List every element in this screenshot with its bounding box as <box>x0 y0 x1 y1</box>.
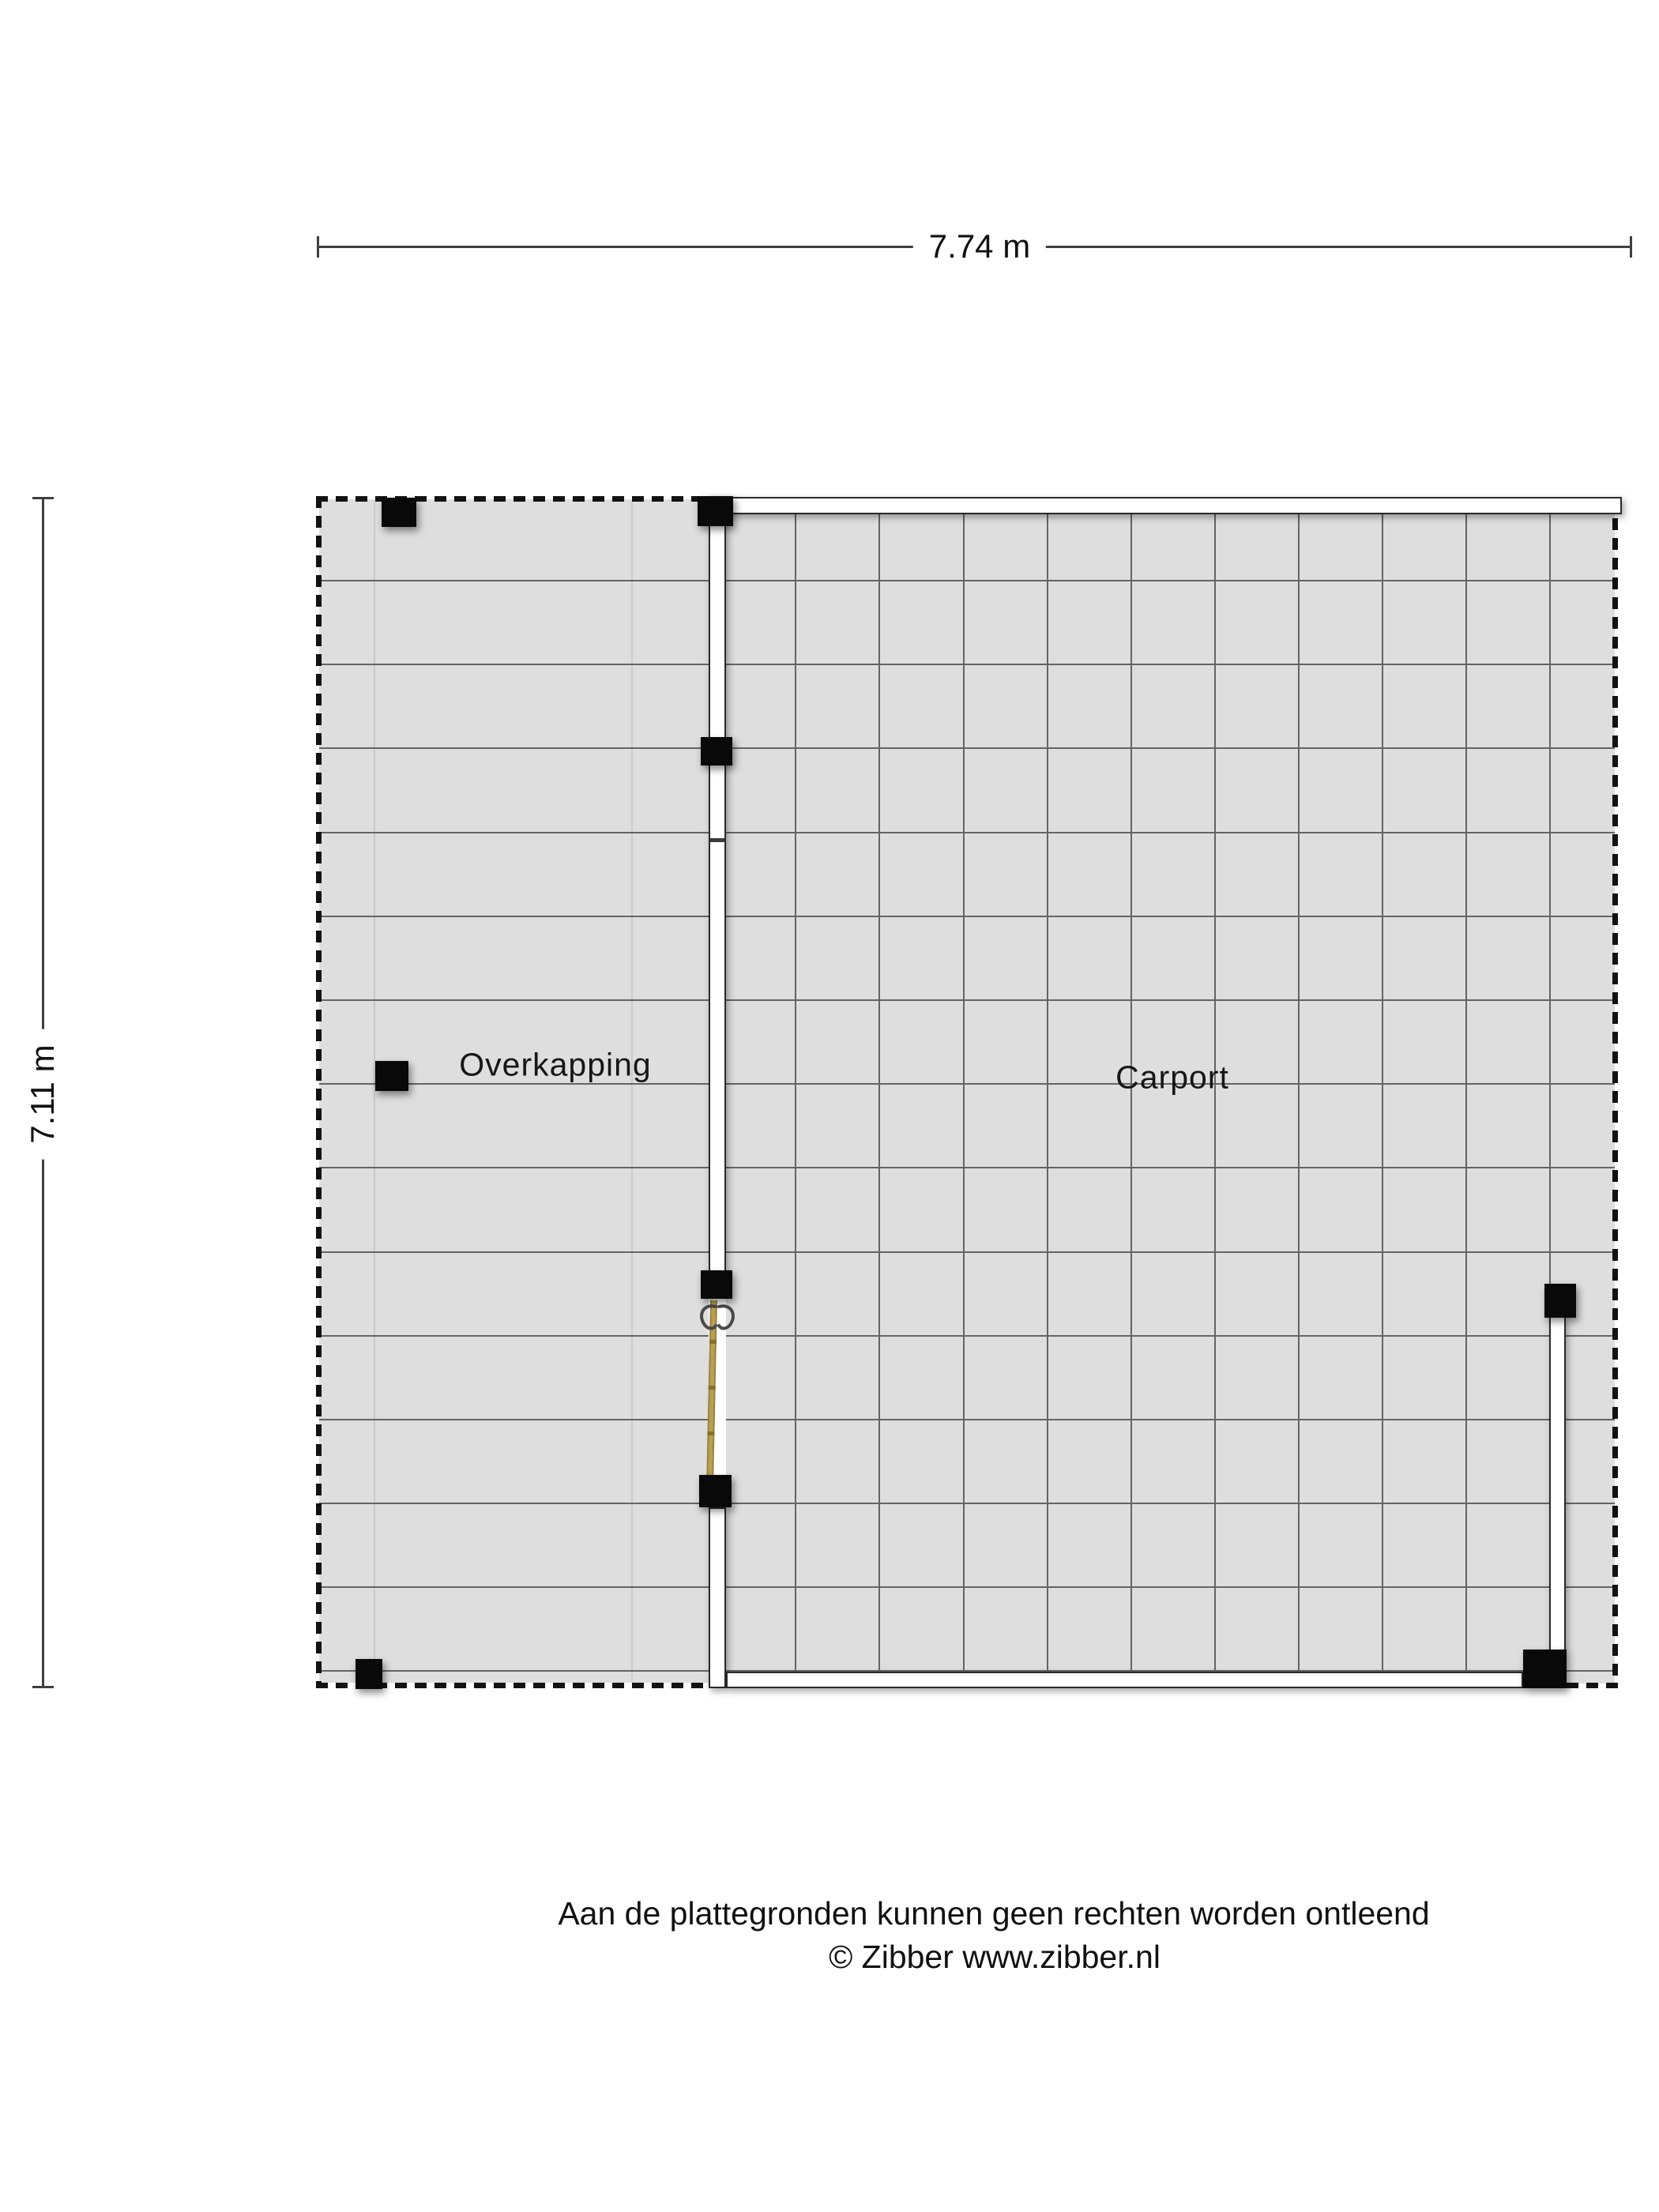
wall-middle-lower <box>709 1507 726 1688</box>
edge-left <box>316 496 322 1688</box>
wall-bottom <box>726 1672 1523 1688</box>
grid-line-h <box>319 1419 709 1420</box>
grid-line-h <box>319 1503 709 1504</box>
grid-line-h <box>726 1167 1615 1168</box>
grid-line-h <box>319 1167 709 1168</box>
grid-line-v <box>1465 514 1467 1671</box>
grid-line-h <box>726 1586 1615 1588</box>
grid-line-h <box>319 916 709 917</box>
grid-line-h <box>319 999 709 1001</box>
room-label-overkapping: Overkapping <box>459 1049 651 1082</box>
grid-line-v <box>963 514 965 1671</box>
grid-line-h <box>319 1586 709 1588</box>
grid-line-h <box>319 1251 709 1253</box>
grid-line-v <box>1298 514 1300 1671</box>
post <box>1523 1650 1567 1688</box>
wall-joint <box>710 838 724 842</box>
gate-rung <box>707 1431 714 1435</box>
room-label-carport: Carport <box>1115 1062 1229 1094</box>
edge-bottom-right <box>1567 1683 1618 1688</box>
grid-line-h <box>319 664 709 665</box>
wall-middle-upper <box>709 497 726 1272</box>
edge-top <box>316 496 709 502</box>
post <box>701 737 732 766</box>
grid-line-v <box>795 514 796 1671</box>
overkapping-floor <box>319 499 709 1683</box>
grid-line-h <box>319 580 709 581</box>
copyright-text: © Zibber www.zibber.nl <box>829 1941 1161 1973</box>
grid-line-h <box>726 580 1615 581</box>
grid-line-h <box>726 1503 1615 1504</box>
grid-line-h <box>319 747 709 749</box>
gate-rung <box>709 1386 716 1390</box>
post <box>375 1061 408 1091</box>
grid-line-v <box>374 502 375 1681</box>
carport-floor-corner <box>1567 1672 1615 1683</box>
grid-line-h <box>726 832 1615 833</box>
post <box>382 498 416 527</box>
floorplan-page: 7.74 m 7.11 m Overkapping Carport Aan de… <box>0 0 1659 2212</box>
floorplan <box>0 0 1659 2212</box>
grid-line-h <box>319 1335 709 1337</box>
gate-rung <box>709 1340 717 1344</box>
grid-line-v <box>631 502 633 1681</box>
wall-right-stub <box>1549 1316 1566 1651</box>
grid-line-h <box>726 747 1615 749</box>
grid-line-h <box>726 1251 1615 1253</box>
grid-line-v <box>1382 514 1383 1671</box>
post <box>1544 1284 1576 1318</box>
grid-line-h <box>319 832 709 833</box>
gate-handle-icon <box>697 1302 738 1338</box>
post <box>699 1475 732 1507</box>
grid-line-h <box>726 916 1615 917</box>
grid-line-h <box>726 999 1615 1001</box>
post <box>698 496 733 526</box>
wall-top <box>709 497 1622 514</box>
grid-line-h <box>726 1335 1615 1337</box>
disclaimer-text: Aan de plattegronden kunnen geen rechten… <box>558 1898 1429 1930</box>
post <box>355 1659 382 1689</box>
grid-line-v <box>878 514 880 1671</box>
grid-line-h <box>726 664 1615 665</box>
edge-right <box>1612 518 1618 1688</box>
post <box>701 1270 732 1299</box>
grid-line-h <box>726 1419 1615 1420</box>
grid-line-v <box>1047 514 1048 1671</box>
